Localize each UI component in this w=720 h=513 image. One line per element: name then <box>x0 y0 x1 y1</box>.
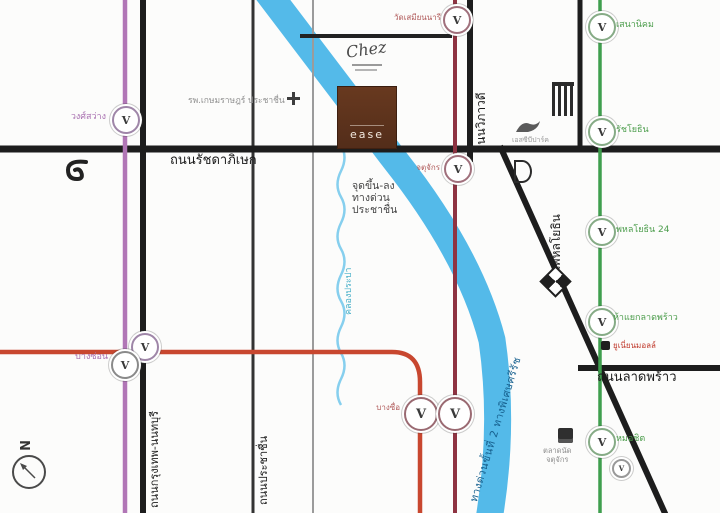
station-icon: V <box>598 21 607 34</box>
scb-park-icon <box>514 118 542 134</box>
station-wat-samian-nari: V <box>443 6 471 34</box>
union-mall-label: ยูเนี่ยนมอลล์ <box>613 341 656 350</box>
station-icon: V <box>141 341 150 354</box>
station-phahonyothin-24: V <box>588 218 616 246</box>
project-logo-text: ease <box>350 125 384 141</box>
station-icon: V <box>453 14 462 27</box>
station-label-phahonyothin-24: พหลโยธิน 24 <box>616 225 669 235</box>
compass-needle <box>14 457 44 487</box>
station-icon: V <box>121 359 130 372</box>
station-icon: V <box>598 316 607 329</box>
market-label-line2: จตุจักร <box>543 456 572 465</box>
road-label-vibhavadi: ถนนวิภาวดี <box>475 92 489 152</box>
expressway-note-line3: ประชาชื่น <box>352 204 397 216</box>
road-phahonyothin-diagonal <box>500 146 668 513</box>
road-label-prachachuen: ถนนประชาชื่น <box>258 436 271 505</box>
canal-label: คลองประปา <box>344 268 354 315</box>
scb-park-label: เอสซีบีปาร์ค <box>512 136 549 144</box>
compass-icon <box>12 455 46 489</box>
station-label-chatuchak: จตุจักร <box>404 163 440 172</box>
road-label-ratchadaphisek: ถนนรัชดาภิเษก <box>170 154 257 169</box>
station-icon: V <box>450 407 460 422</box>
station-ha-yaek-lat-phrao: V <box>588 308 616 336</box>
expressway-note-line2: ทางด่วน <box>352 192 397 204</box>
station-icon: V <box>619 464 624 473</box>
market-label: ตลาดนัด จตุจักร <box>543 447 572 464</box>
location-map: ถนนรัชดาภิเษก ถนนวิภาวดี ถนนพหลโยธิน ถนน… <box>0 0 720 513</box>
station-label-bang-sue: บางซื่อ <box>358 403 400 412</box>
union-mall-icon <box>601 341 610 350</box>
building-icon <box>552 82 574 116</box>
station-icon: V <box>598 126 607 139</box>
station-label-sena-nikhom: เสนานิคม <box>616 20 654 30</box>
station-label-wong-sawang: วงศ์สว่าง <box>40 112 106 122</box>
project-script-underline <box>352 64 382 66</box>
station-icon: V <box>598 226 607 239</box>
market-icon <box>558 428 573 443</box>
station-label-mo-chit: หมอชิต <box>616 434 645 444</box>
expressway-entrance-note: จุดขึ้น-ลง ทางด่วน ประชาชื่น <box>352 180 397 216</box>
station-label-wat-samian-nari: วัดเสมียนนารี <box>383 13 441 22</box>
station-label-bang-son: บางซ่อน <box>56 352 108 362</box>
station-minor: V <box>612 459 631 478</box>
station-icon: V <box>416 407 426 422</box>
expressway-band <box>262 0 498 513</box>
hospital-cross-icon <box>287 92 300 105</box>
road-label-lat-phrao: ถนนลาดพร้าว <box>597 371 677 386</box>
landmark-squiggle-icon <box>62 158 90 184</box>
station-label-ha-yaek-lat-phrao: ห้าแยกลาดพร้าว <box>613 313 678 323</box>
station-icon: V <box>454 163 463 176</box>
orange-transit-line <box>0 352 420 513</box>
hospital-label: รพ.เกษมราษฎร์ ประชาชื่น <box>188 97 282 107</box>
road-label-krungthep-nonthaburi: ถนนกรุงเทพ-นนทบุรี <box>149 411 162 508</box>
station-wong-sawang: V <box>112 106 140 134</box>
project-script-underline2 <box>355 69 377 71</box>
station-bang-sue-b: V <box>438 397 472 431</box>
project-location-marker: ease <box>337 86 397 149</box>
station-icon: V <box>122 114 131 127</box>
station-bang-sue-a: V <box>404 397 438 431</box>
compass-north-label: N <box>20 440 35 451</box>
station-sena-nikhom: V <box>588 13 616 41</box>
station-bang-son-b: V <box>111 351 139 379</box>
station-ratchayothin: V <box>588 118 616 146</box>
expressway-note-line1: จุดขึ้น-ลง <box>352 180 397 192</box>
station-label-ratchayothin: รัชโยธิน <box>616 125 649 135</box>
station-mo-chit: V <box>588 428 616 456</box>
station-chatuchak: V <box>444 155 472 183</box>
station-icon: V <box>598 436 607 449</box>
